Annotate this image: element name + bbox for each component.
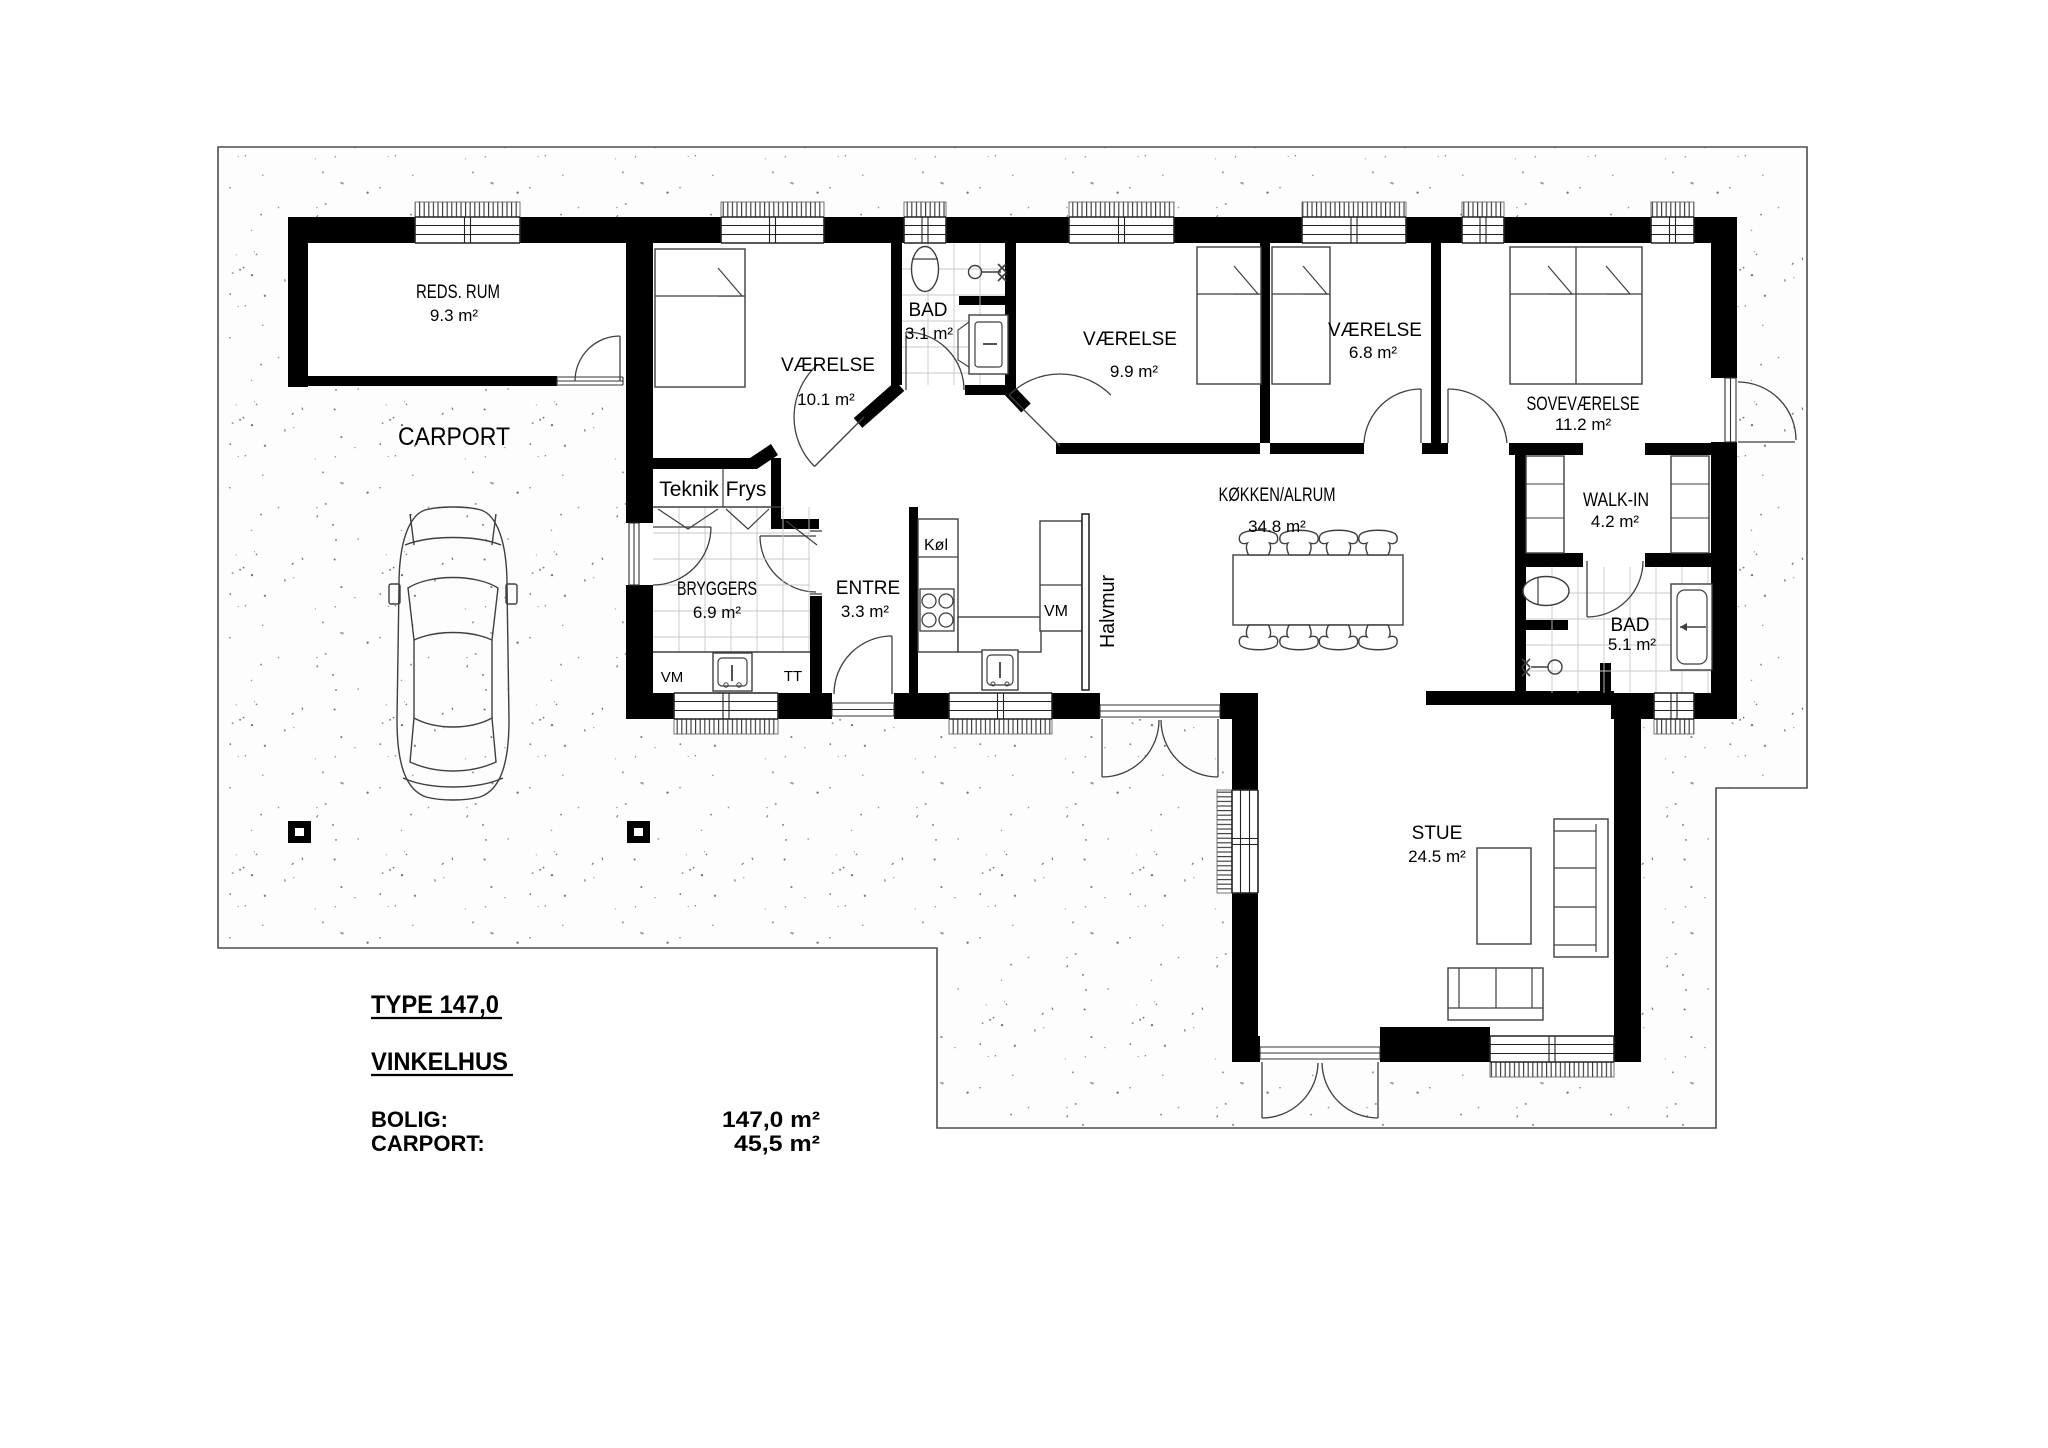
svg-text:TYPE 147,0: TYPE 147,0 [371,991,499,1019]
svg-text:VÆRELSE: VÆRELSE [781,355,875,376]
svg-text:KØKKEN/ALRUM: KØKKEN/ALRUM [1219,485,1336,506]
svg-text:VINKELHUS: VINKELHUS [371,1048,508,1076]
svg-text:9.3 m²: 9.3 m² [430,306,479,325]
svg-text:SOVEVÆRELSE: SOVEVÆRELSE [1527,394,1640,415]
svg-text:9.9 m²: 9.9 m² [1110,362,1159,381]
svg-text:VÆRELSE: VÆRELSE [1328,320,1422,341]
svg-text:ENTRE: ENTRE [836,578,900,599]
svg-text:BAD: BAD [1610,615,1649,636]
svg-text:STUE: STUE [1412,823,1463,844]
svg-text:CARPORT: CARPORT [398,423,510,451]
svg-text:24.5 m²: 24.5 m² [1408,847,1466,866]
svg-text:Frys: Frys [726,478,767,501]
svg-text:VÆRELSE: VÆRELSE [1083,329,1177,350]
svg-text:BOLIG:: BOLIG: [371,1107,448,1132]
svg-text:Teknik: Teknik [659,478,719,501]
svg-text:6.8 m²: 6.8 m² [1349,343,1398,362]
svg-text:BAD: BAD [908,300,947,321]
svg-text:REDS. RUM: REDS. RUM [416,282,500,303]
svg-text:VM: VM [661,669,684,686]
svg-text:147,0 m²: 147,0 m² [722,1107,820,1132]
svg-text:3.1 m²: 3.1 m² [905,324,954,343]
svg-text:CARPORT:: CARPORT: [371,1131,485,1156]
svg-text:5.1 m²: 5.1 m² [1608,635,1657,654]
svg-text:3.3 m²: 3.3 m² [841,602,890,621]
svg-text:WALK-IN: WALK-IN [1583,490,1649,511]
svg-text:Køl: Køl [924,537,948,554]
svg-text:BRYGGERS: BRYGGERS [677,579,757,600]
svg-text:6.9 m²: 6.9 m² [693,603,742,622]
svg-text:34.8 m²: 34.8 m² [1248,517,1306,536]
svg-text:VM: VM [1044,603,1068,620]
svg-text:TT: TT [784,668,802,685]
svg-text:45,5 m²: 45,5 m² [734,1131,820,1156]
svg-text:Halvmur: Halvmur [1097,575,1119,648]
svg-text:10.1 m²: 10.1 m² [797,390,855,409]
svg-text:4.2 m²: 4.2 m² [1591,512,1640,531]
svg-text:11.2 m²: 11.2 m² [1555,415,1612,434]
